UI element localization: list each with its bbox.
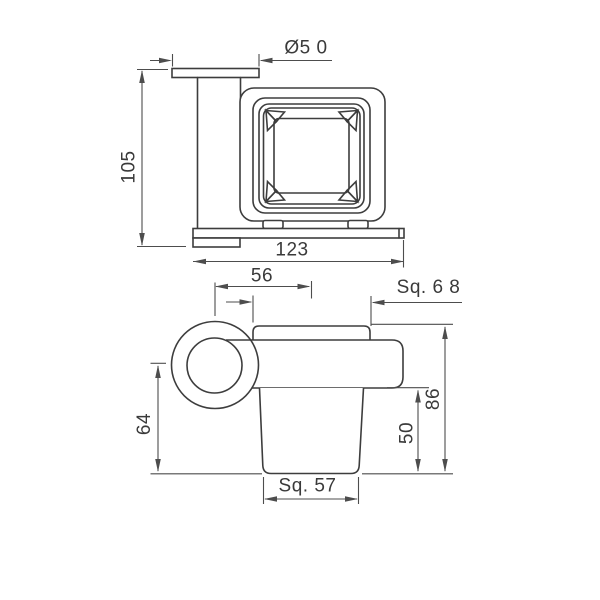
mount-flange-inner-circle [187, 338, 242, 393]
holder-foot-right [348, 221, 368, 229]
post-below-plate [193, 238, 240, 247]
dim-drop-height: 64 [134, 363, 262, 474]
arrowhead-left-icon [264, 496, 277, 502]
dim-center-offset: 56 [215, 266, 312, 317]
arrowhead-right-icon [159, 58, 172, 64]
flange-edge [172, 69, 259, 78]
base-plate [193, 229, 404, 239]
dim-label-cup-square: Sq. 57 [279, 476, 337, 497]
dim-flange-diameter: Ø5 0 [150, 38, 332, 67]
arrowhead-down-icon [155, 459, 161, 472]
dim-label-center-offset: 56 [251, 266, 273, 287]
dim-label-cup-exposed-height: 50 [397, 422, 418, 444]
dim-label-depth: 105 [119, 150, 140, 183]
dim-label-holder-square: Sq. 6 8 [397, 277, 461, 298]
arrowhead-up-icon [155, 365, 161, 378]
arrowhead-left-icon [193, 259, 206, 265]
arrowhead-down-icon [442, 459, 448, 472]
arrowhead-down-icon [415, 459, 421, 472]
arrowhead-up-icon [442, 326, 448, 339]
dim-label-drop-height: 64 [134, 413, 155, 435]
dim-cup-square: Sq. 57 [264, 476, 359, 505]
arrowhead-up-icon [139, 70, 145, 83]
dim-depth: 105 [119, 70, 187, 247]
dim-label-width: 123 [275, 240, 308, 261]
technical-drawing-canvas: Ø5 0 105 123 [0, 0, 600, 600]
arrowhead-right-icon [345, 496, 358, 502]
arrowhead-left-icon [215, 284, 228, 290]
drawing-page: Ø5 0 105 123 [0, 0, 600, 600]
cup-body-profile [260, 388, 364, 474]
arrowhead-right-icon [298, 284, 311, 290]
arrowhead-down-icon [139, 233, 145, 246]
holder-foot-left [263, 221, 283, 229]
dim-label-flange-diameter: Ø5 0 [284, 38, 327, 59]
arrowhead-right-icon [240, 299, 253, 305]
dim-label-overall-height: 86 [423, 388, 444, 410]
support-arm [226, 340, 403, 388]
arrowhead-right-icon [391, 259, 404, 265]
arrowhead-up-icon [415, 390, 421, 403]
front-view: 56 Sq. 6 8 86 50 [134, 266, 462, 505]
top-view: Ø5 0 105 123 [119, 38, 405, 268]
